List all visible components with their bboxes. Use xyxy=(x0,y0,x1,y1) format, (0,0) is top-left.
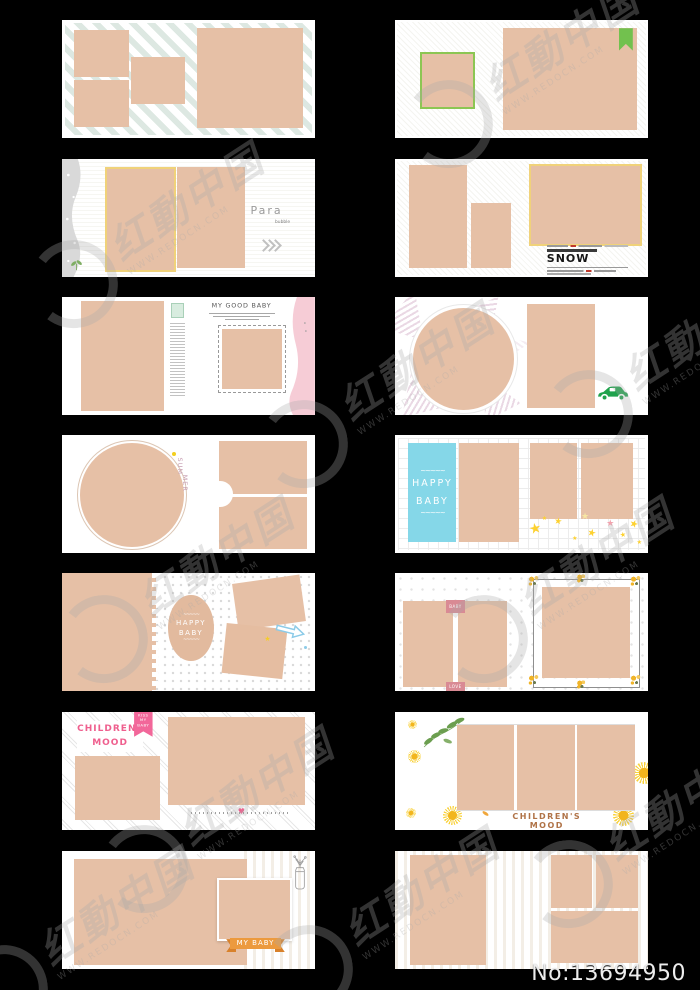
photo-placeholder xyxy=(596,855,638,908)
star-icon: ★ xyxy=(606,520,614,529)
photo-placeholder xyxy=(222,329,283,389)
snow-title: SNOW xyxy=(547,253,628,268)
tag-baby: BABY xyxy=(446,600,465,613)
template-12: CHILDREN'S MOOD xyxy=(395,712,648,830)
squiggle-decoration: ~~~~~ xyxy=(420,468,444,475)
snow-text-block: SNOW xyxy=(547,245,628,275)
watermark-swirl-icon xyxy=(0,939,54,990)
photo-placeholder xyxy=(503,28,637,129)
fine-print-line xyxy=(547,270,628,272)
fine-print-line xyxy=(547,245,628,247)
flower-decoration xyxy=(408,750,421,763)
car-icon xyxy=(595,384,631,402)
star-icon: ★ xyxy=(264,636,270,643)
photo-placeholder xyxy=(62,573,156,691)
photo-placeholder xyxy=(105,167,176,271)
page-title: MY GOOD BABY xyxy=(205,302,278,309)
side-text: SUM xyxy=(176,458,183,476)
notch-circle xyxy=(207,481,232,507)
star-icon: ★ xyxy=(620,531,627,539)
side-text: MER xyxy=(181,474,188,491)
image-number: No:13694950 xyxy=(531,961,686,986)
photo-placeholder xyxy=(459,443,520,542)
fine-print-line xyxy=(547,273,592,275)
ribbon-label: MY BABY xyxy=(230,938,281,949)
oval-title-line: BABY xyxy=(179,630,203,637)
photo-placeholder xyxy=(219,497,308,550)
photo-placeholder xyxy=(457,725,515,810)
divider xyxy=(453,601,458,687)
photo-placeholder xyxy=(74,30,130,77)
dotted-divider: ♥ xyxy=(191,812,288,814)
watermark-url: WWW.REDOCN.COM xyxy=(642,304,700,407)
photo-placeholder xyxy=(177,167,245,267)
title-panel: ~~~~~ HAPPY BABY ~~~~~ xyxy=(408,443,456,542)
photo-placeholder xyxy=(81,301,164,412)
pink-wave-decoration xyxy=(287,297,315,415)
album-template-preview-sheet: Para bubble SNOW MY GOOD BABY xyxy=(0,0,700,990)
title-block: CHILDREN'S MOOD xyxy=(77,721,143,752)
photo-placeholder xyxy=(74,80,130,127)
photo-placeholder xyxy=(409,165,467,268)
tag-decoration xyxy=(171,303,184,318)
tag-label: LOVE xyxy=(449,684,461,689)
photo-placeholder xyxy=(410,855,486,965)
ribbon-line: BABY xyxy=(137,723,149,728)
flower-ornament xyxy=(528,575,540,587)
photo-placeholder xyxy=(527,304,595,408)
petal-decoration xyxy=(482,811,489,817)
chevrons-right-icon xyxy=(262,235,280,254)
dot-decoration xyxy=(304,646,307,649)
photo-placeholder xyxy=(219,441,308,494)
flower-decoration xyxy=(406,808,416,818)
template-1 xyxy=(62,20,315,138)
photo-placeholder xyxy=(551,911,639,963)
heart-icon: ♥ xyxy=(238,808,245,816)
caption: Para xyxy=(250,204,282,217)
photo-placeholder xyxy=(403,601,453,687)
flower-ornament xyxy=(577,680,586,689)
template-5: MY GOOD BABY xyxy=(62,297,315,415)
flower-ornament xyxy=(528,674,540,686)
flower-ornament xyxy=(630,674,642,686)
tilted-photo-placeholder xyxy=(232,574,306,630)
photo-placeholder xyxy=(581,443,633,519)
squiggle-decoration: ~~~~~ xyxy=(183,638,199,643)
template-11: CHILDREN'S MOOD KISS MY BABY ♥ xyxy=(62,712,315,830)
photo-placeholder xyxy=(168,717,305,804)
squiggle-decoration: ~~~~~ xyxy=(183,613,199,618)
template-14 xyxy=(395,851,648,969)
photo-placeholder xyxy=(529,164,642,246)
dotted-photo-frame xyxy=(218,325,287,393)
panel-title-line: BABY xyxy=(416,497,449,507)
leaf-sprig-icon xyxy=(70,258,83,271)
star-icon: ★ xyxy=(581,513,589,522)
star-icon: ★ xyxy=(542,516,547,522)
oval-title-line: HAPPY xyxy=(176,620,206,627)
star-icon: ★ xyxy=(528,521,543,537)
photo-placeholder xyxy=(420,52,475,109)
template-6 xyxy=(395,297,648,415)
title-line: CHILDREN'S xyxy=(77,723,143,737)
circle-photo-placeholder xyxy=(410,305,517,414)
title-line: MOOD xyxy=(77,737,143,751)
photo-placeholder xyxy=(458,601,508,687)
subcaption: bubble xyxy=(275,219,290,224)
squiggle-decoration: ~~~~~ xyxy=(420,510,444,517)
flower-ornament xyxy=(630,575,642,587)
torn-edge-decoration xyxy=(152,573,158,691)
template-8: ~~~~~ HAPPY BABY ~~~~~ ★ ★ ★ ★ ★ ★ ★ ★ ★… xyxy=(395,435,648,553)
flower-decoration xyxy=(633,762,648,784)
template-2 xyxy=(395,20,648,138)
template-13: MY BABY xyxy=(62,851,315,969)
vase-decoration xyxy=(290,853,310,893)
rule-line xyxy=(456,810,636,811)
fine-print-column xyxy=(170,323,185,399)
ribbon-banner: MY BABY xyxy=(230,936,281,950)
template-9: ~~~~~ HAPPY BABY ~~~~~ ★ xyxy=(62,573,315,691)
photo-placeholder xyxy=(131,57,185,104)
photo-placeholder xyxy=(517,725,575,810)
panel-title-line: HAPPY xyxy=(412,479,453,489)
photo-placeholder xyxy=(471,203,511,268)
flower-decoration xyxy=(408,720,417,729)
fine-print-lines xyxy=(209,311,275,320)
tag-label: BABY xyxy=(449,604,461,609)
template-3: Para bubble xyxy=(62,159,315,277)
template-7: SUM MER xyxy=(62,435,315,553)
star-icon: ★ xyxy=(637,540,642,546)
template-4: SNOW xyxy=(395,159,648,277)
photo-placeholder xyxy=(551,855,592,908)
photo-placeholder xyxy=(197,28,303,128)
photo-placeholder xyxy=(530,443,578,519)
caption: CHILDREN'S MOOD xyxy=(501,812,592,830)
photo-placeholder xyxy=(217,878,292,941)
title-oval: ~~~~~ HAPPY BABY ~~~~~ xyxy=(168,595,214,661)
template-10: BABY LOVE xyxy=(395,573,648,691)
tag-love: LOVE xyxy=(446,682,465,691)
dot-decoration xyxy=(172,452,176,456)
circle-photo-placeholder xyxy=(78,441,186,549)
photo-placeholder xyxy=(542,587,630,678)
star-icon: ★ xyxy=(572,536,577,542)
photo-placeholder xyxy=(577,725,635,810)
photo-placeholder xyxy=(75,756,161,820)
flower-ornament xyxy=(577,574,586,583)
